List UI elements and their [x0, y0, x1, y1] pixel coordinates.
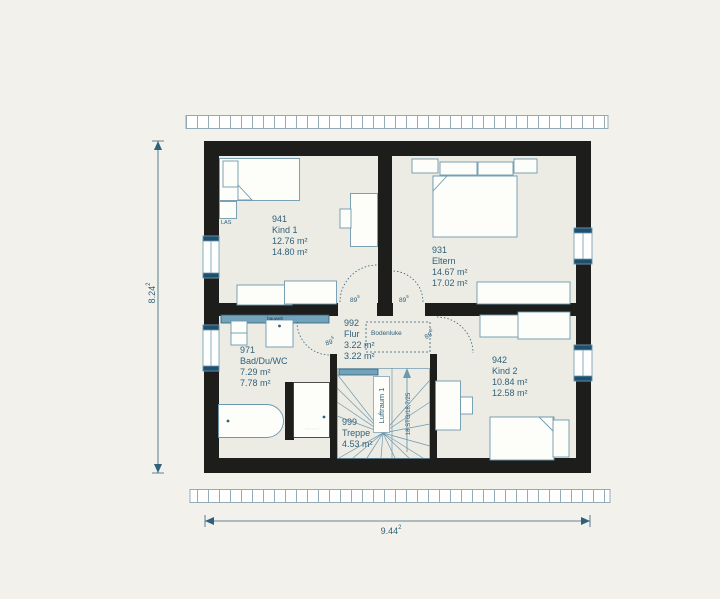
- radiator-treppe: [339, 369, 378, 375]
- bed-kind2: [490, 417, 554, 460]
- wall-bad-treppe: [330, 354, 337, 458]
- room-area-net: 7.29 m²: [240, 367, 288, 378]
- room-number: 941: [272, 214, 308, 225]
- desk-kind1: [351, 194, 378, 247]
- shelf-kind2-a: [480, 315, 520, 337]
- room-name: Kind 1: [272, 225, 308, 236]
- room-area-net: 10.84 m²: [492, 377, 528, 388]
- nightstand-eltern-left: [412, 159, 438, 173]
- floorplan-page: { "plan": { "rooms": [ {"id": "941", "na…: [0, 0, 720, 599]
- dimension-width-label: 9.442: [368, 523, 414, 535]
- radiator-label-bad: bauwelt: [221, 315, 329, 323]
- nightstand-kind1: [220, 202, 237, 219]
- room-area-net: 4.53 m²: [342, 439, 373, 450]
- chair-kind1: [340, 209, 351, 228]
- room-label-kind2: 942 Kind 2 10.84 m² 12.58 m²: [492, 355, 528, 399]
- dresser-eltern: [477, 282, 570, 304]
- dimension-height-label: 8.242: [144, 271, 156, 315]
- room-label-treppe: 999 Treppe 4.53 m²: [342, 417, 373, 450]
- nightstand-eltern-right: [514, 159, 537, 173]
- room-area-net: 12.76 m²: [272, 236, 308, 247]
- room-area-gross: 12.58 m²: [492, 388, 528, 399]
- furniture-tag-las: LAS: [221, 220, 231, 226]
- room-name: Eltern: [432, 256, 468, 267]
- window-kind2-right: [574, 345, 592, 381]
- roof-overhang-band-bottom: [190, 490, 610, 503]
- room-area-gross: 14.80 m²: [272, 247, 308, 258]
- washbasin-drain: [278, 325, 281, 328]
- dresser-kind1-b: [285, 281, 337, 304]
- stair-spec-label: 18 STG/18,7/25: [404, 369, 414, 459]
- bodenluke-label: Bodenluke: [371, 330, 402, 337]
- pillow-eltern-right: [478, 162, 513, 175]
- shower-drain: [323, 416, 326, 419]
- room-label-flur: 992 Flur 3.22 m² 3.22 m²: [344, 318, 375, 362]
- washbasin-large: [266, 320, 293, 347]
- pillow-kind1: [223, 161, 238, 187]
- door-width-label-eltern: 895: [399, 294, 409, 304]
- room-number: 999: [342, 417, 373, 428]
- room-number: 931: [432, 245, 468, 256]
- room-label-kind1: 941 Kind 1 12.76 m² 14.80 m²: [272, 214, 308, 258]
- desk-kind2: [436, 381, 461, 430]
- room-name: Treppe: [342, 428, 373, 439]
- wall-shower: [285, 382, 294, 440]
- window-eltern-right: [574, 228, 592, 264]
- roof-overhang-band-top: [186, 116, 608, 129]
- shelf-kind2-b: [518, 312, 570, 339]
- room-name: Bad/Du/WC: [240, 356, 288, 367]
- window-bad-left: [203, 325, 219, 371]
- bed-eltern: [433, 176, 517, 237]
- door-width-label-kind1: 895: [350, 294, 360, 304]
- room-number: 942: [492, 355, 528, 366]
- wall-kind1-eltern: [378, 156, 392, 305]
- room-area-gross: 3.22 m²: [344, 351, 375, 362]
- pillow-eltern-left: [440, 162, 477, 175]
- room-area-gross: 7.78 m²: [240, 378, 288, 389]
- room-area-gross: 17.02 m²: [432, 278, 468, 289]
- floorplan-graphics: [0, 0, 720, 599]
- room-name: Flur: [344, 329, 375, 340]
- luftraum-label: Luftraum 1: [375, 377, 388, 434]
- room-label-eltern: 931 Eltern 14.67 m² 17.02 m²: [432, 245, 468, 289]
- dresser-kind1-a: [237, 285, 292, 305]
- room-number: 992: [344, 318, 375, 329]
- room-number: 971: [240, 345, 288, 356]
- room-area-net: 3.22 m²: [344, 340, 375, 351]
- room-area-net: 14.67 m²: [432, 267, 468, 278]
- room-name: Kind 2: [492, 366, 528, 377]
- radiator-label-shower: bauwelt: [296, 424, 328, 434]
- window-kind1-left: [203, 236, 219, 278]
- wall-middle-stub: [377, 303, 393, 316]
- chair-kind2: [461, 397, 473, 414]
- bathtub-drain: [227, 420, 230, 423]
- pillow-kind2: [553, 420, 569, 457]
- room-label-bad: 971 Bad/Du/WC 7.29 m² 7.78 m²: [240, 345, 288, 389]
